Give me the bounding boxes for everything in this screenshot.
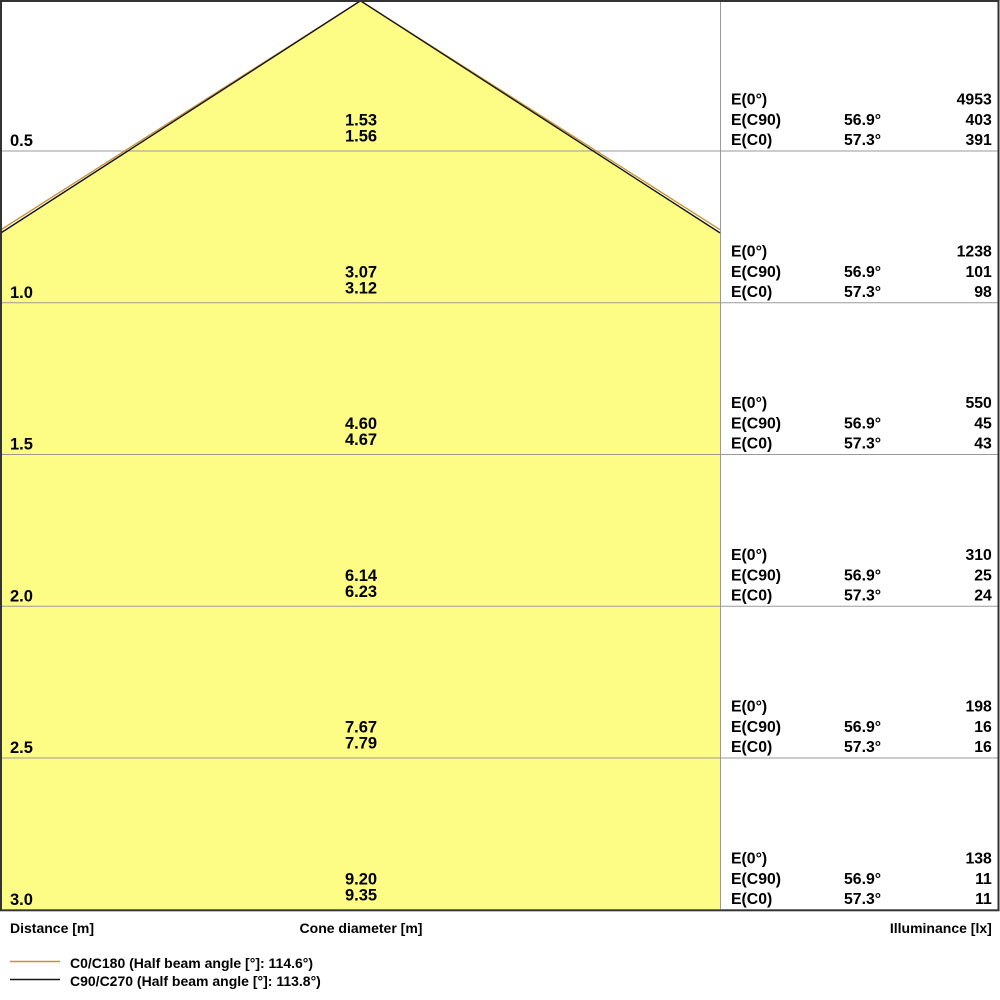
- svg-text:1.0: 1.0: [10, 284, 33, 302]
- svg-text:E(C0): E(C0): [731, 891, 772, 908]
- svg-text:391: 391: [965, 132, 992, 149]
- svg-text:24: 24: [974, 588, 992, 605]
- svg-text:16: 16: [974, 739, 992, 756]
- svg-text:Cone diameter [m]: Cone diameter [m]: [300, 920, 423, 936]
- svg-text:E(0°): E(0°): [731, 243, 767, 260]
- svg-text:57.3°: 57.3°: [844, 891, 881, 908]
- svg-text:57.3°: 57.3°: [844, 436, 881, 453]
- svg-text:E(C0): E(C0): [731, 284, 772, 301]
- svg-text:E(0°): E(0°): [731, 850, 767, 867]
- svg-text:9.35: 9.35: [345, 886, 377, 904]
- svg-text:57.3°: 57.3°: [844, 284, 881, 301]
- svg-text:C0/C180 (Half beam angle [°]:: C0/C180 (Half beam angle [°]: 114.6°): [70, 955, 313, 971]
- svg-text:101: 101: [965, 264, 992, 281]
- svg-text:E(0°): E(0°): [731, 92, 767, 109]
- svg-text:E(C90): E(C90): [731, 719, 781, 736]
- svg-text:Distance [m]: Distance [m]: [10, 920, 94, 936]
- svg-text:56.9°: 56.9°: [844, 567, 881, 584]
- svg-text:E(C90): E(C90): [731, 264, 781, 281]
- svg-text:4.67: 4.67: [345, 431, 377, 449]
- svg-text:E(C90): E(C90): [731, 567, 781, 584]
- svg-text:11: 11: [975, 891, 992, 908]
- svg-text:56.9°: 56.9°: [844, 112, 881, 129]
- svg-text:3.0: 3.0: [10, 891, 33, 909]
- svg-text:57.3°: 57.3°: [844, 132, 881, 149]
- svg-text:E(C0): E(C0): [731, 588, 772, 605]
- svg-text:57.3°: 57.3°: [844, 739, 881, 756]
- svg-text:E(0°): E(0°): [731, 547, 767, 564]
- svg-text:E(C0): E(C0): [731, 132, 772, 149]
- svg-text:C90/C270 (Half beam angle [°]:: C90/C270 (Half beam angle [°]: 113.8°): [70, 973, 321, 989]
- svg-text:403: 403: [965, 112, 992, 129]
- svg-text:1238: 1238: [957, 243, 992, 260]
- svg-text:E(C0): E(C0): [731, 436, 772, 453]
- svg-text:198: 198: [965, 699, 992, 716]
- svg-text:45: 45: [974, 416, 992, 433]
- svg-text:E(C90): E(C90): [731, 112, 781, 129]
- svg-text:6.23: 6.23: [345, 583, 377, 601]
- svg-text:1.56: 1.56: [345, 128, 377, 146]
- svg-text:1.5: 1.5: [10, 436, 33, 454]
- svg-text:57.3°: 57.3°: [844, 588, 881, 605]
- svg-text:E(C90): E(C90): [731, 416, 781, 433]
- svg-text:E(0°): E(0°): [731, 395, 767, 412]
- svg-text:25: 25: [974, 567, 992, 584]
- svg-text:56.9°: 56.9°: [844, 264, 881, 281]
- svg-text:3.12: 3.12: [345, 279, 377, 297]
- svg-text:16: 16: [974, 719, 992, 736]
- svg-text:310: 310: [965, 547, 992, 564]
- svg-text:11: 11: [975, 871, 992, 888]
- svg-text:138: 138: [965, 850, 992, 867]
- svg-text:4953: 4953: [957, 92, 992, 109]
- svg-text:E(0°): E(0°): [731, 699, 767, 716]
- svg-text:56.9°: 56.9°: [844, 871, 881, 888]
- svg-text:56.9°: 56.9°: [844, 719, 881, 736]
- svg-text:0.5: 0.5: [10, 132, 33, 150]
- svg-text:550: 550: [965, 395, 992, 412]
- svg-text:E(C0): E(C0): [731, 739, 772, 756]
- svg-text:Illuminance [lx]: Illuminance [lx]: [890, 920, 992, 936]
- svg-text:56.9°: 56.9°: [844, 416, 881, 433]
- svg-text:7.79: 7.79: [345, 735, 377, 753]
- svg-text:2.5: 2.5: [10, 739, 33, 757]
- svg-text:98: 98: [974, 284, 992, 301]
- svg-text:2.0: 2.0: [10, 587, 33, 605]
- svg-text:E(C90): E(C90): [731, 871, 781, 888]
- svg-text:43: 43: [974, 436, 992, 453]
